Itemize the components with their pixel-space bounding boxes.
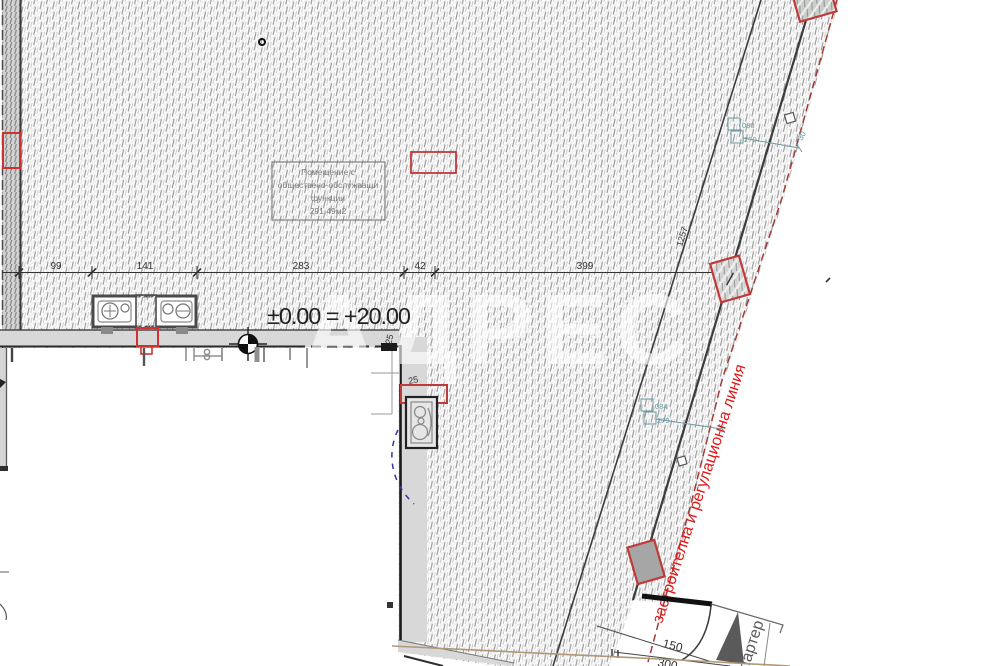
svg-text:42: 42	[414, 261, 426, 272]
svg-text:399: 399	[577, 261, 594, 272]
svg-text:Помещение с: Помещение с	[301, 167, 356, 177]
svg-text:084: 084	[655, 402, 668, 411]
svg-text:АДРЕС: АДРЕС	[303, 274, 696, 386]
svg-text:291.49м2: 291.49м2	[310, 206, 347, 216]
svg-text:99: 99	[50, 261, 62, 272]
svg-text:270: 270	[744, 135, 757, 144]
svg-text:141: 141	[137, 261, 154, 272]
svg-text:279: 279	[657, 416, 670, 425]
svg-text:±0.00 = +20.00: ±0.00 = +20.00	[267, 303, 411, 329]
svg-text:обществено-обслужващи: обществено-обслужващи	[278, 180, 379, 190]
svg-text:080: 080	[742, 121, 755, 130]
svg-text:функции: функции	[311, 193, 345, 203]
svg-text:283: 283	[293, 261, 310, 272]
